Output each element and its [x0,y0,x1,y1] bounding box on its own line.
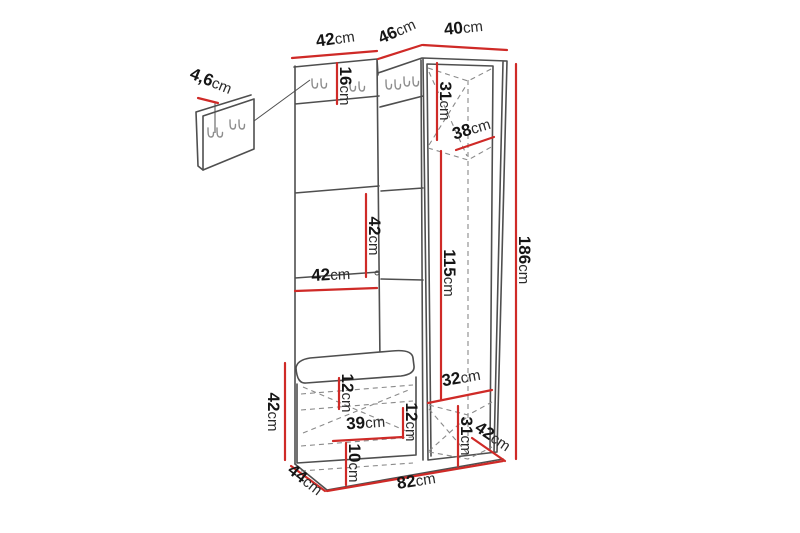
dim-wardrobe-inner-height: 115cm [440,151,459,399]
wall-hook-panel [196,80,310,170]
dimension-line [198,98,218,103]
dimension-label: 10cm [345,444,364,483]
dimension-label: 42cm [472,418,515,456]
wall-panel-front-face [203,99,254,170]
dim-top-width-right: 40cm [423,16,507,50]
dimension-label: 12cm [338,374,357,413]
dimension-line [423,45,507,50]
coat-hook-icon [386,80,401,89]
dimension-label: 4,6cm [187,64,235,98]
dim-top-width-middle: 46cm [375,14,422,59]
coat-hook-icon [312,79,327,88]
dim-total-height: 186cm [515,64,534,459]
diagram-canvas: 42cm 46cm 40cm 4,6cm 16cm 31cm 38cm [0,0,800,533]
dim-bench-bottom-gap: 10cm [345,443,364,485]
dim-bench-height: 42cm [264,363,285,460]
dimension-label: 39cm [346,412,386,434]
dim-bench-inner-gap: 12cm [402,403,421,442]
dimension-label: 42cm [264,393,283,432]
dimension-label: 31cm [436,82,455,121]
dim-wardrobe-inner-width: 32cm [428,365,492,403]
dim-hook-rail-height: 16cm [336,63,355,105]
dimension-label: 31cm [457,417,476,456]
coat-hook-icon [404,77,419,86]
dimension-label: 115cm [440,249,459,296]
dimension-label: 40cm [443,16,484,39]
dimensions: 42cm 46cm 40cm 4,6cm 16cm 31cm 38cm [187,14,534,499]
dimension-line [295,288,377,291]
dimension-label: 42cm [311,264,351,285]
dim-shelf-gap-height: 42cm [365,194,384,277]
dimension-line [378,45,422,59]
dimension-label: 82cm [395,468,436,493]
dimension-line [292,51,377,58]
dimension-label: 32cm [440,365,482,390]
dimension-label: 42cm [365,217,384,256]
dimension-line [428,390,492,403]
dim-top-width-left: 42cm [292,26,377,58]
dimension-label: 44cm [284,460,326,499]
dim-wall-panel-thickness: 4,6cm [187,64,235,103]
dim-bench-top-gap: 12cm [338,374,357,413]
dimension-label: 186cm [515,236,534,284]
dimension-label: 42cm [315,26,356,50]
dimension-label: 16cm [336,67,355,106]
dim-bench-depth: 44cm [284,460,326,499]
corner-wardrobe-outline [423,58,507,460]
dim-wardrobe-diagonal: 38cm [450,114,494,150]
dimension-label: 46cm [375,14,418,47]
furniture-dimension-diagram: 42cm 46cm 40cm 4,6cm 16cm 31cm 38cm [0,0,800,533]
dimension-label: 12cm [402,403,421,442]
dim-bench-inner-width: 39cm [333,412,403,441]
